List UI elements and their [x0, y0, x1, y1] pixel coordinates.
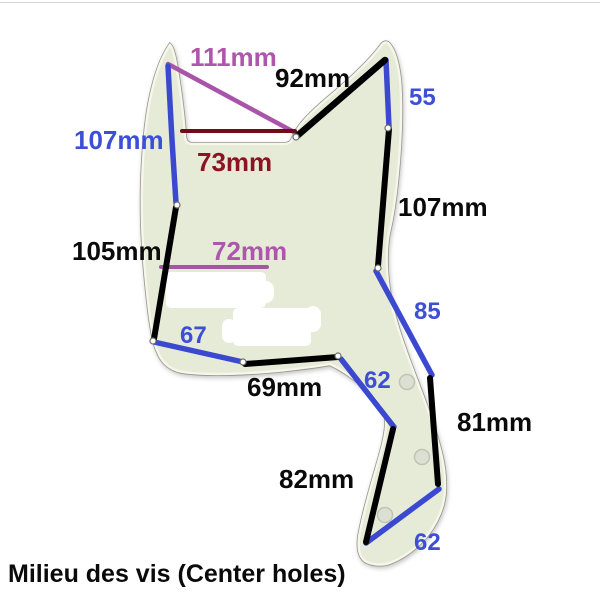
pickup-cutout-lower [233, 308, 311, 346]
label-111mm: 111mm [190, 44, 277, 70]
label-67: 67 [180, 324, 207, 348]
label-81mm: 81mm [457, 409, 532, 435]
screw-hole [174, 202, 180, 208]
pickup-cutout-ear-right-upper [258, 281, 274, 303]
pickup-cutout-upper [166, 272, 266, 308]
pickup-cutout-ear-left-lower [222, 319, 236, 343]
label-85: 85 [414, 300, 441, 324]
pickup-cutout-ear-right-lower [305, 306, 321, 332]
screw-hole [375, 265, 381, 271]
label-105mm: 105mm [72, 238, 162, 264]
label-62-lower: 62 [414, 531, 441, 555]
screw-hole [335, 353, 341, 359]
label-62-upper: 62 [364, 369, 391, 393]
label-82mm: 82mm [279, 466, 354, 492]
label-73mm: 73mm [197, 149, 272, 175]
pot-hole [400, 375, 415, 390]
screw-hole [150, 338, 156, 344]
label-92mm: 92mm [275, 65, 350, 91]
screw-hole [240, 359, 246, 365]
pickguard-measurement-diagram: 111mm 92mm 55 107mm 73mm 107mm 105mm 72m… [0, 0, 600, 600]
measure-line-55 [386, 60, 389, 127]
label-107mm-left: 107mm [74, 127, 164, 153]
screw-hole [293, 134, 299, 140]
label-107mm-right: 107mm [398, 194, 488, 220]
pot-hole [415, 450, 430, 465]
diagram-caption: Milieu des vis (Center holes) [8, 561, 346, 589]
label-72mm: 72mm [212, 238, 287, 264]
screw-hole [385, 125, 391, 131]
label-69mm: 69mm [247, 374, 322, 400]
label-55: 55 [409, 86, 436, 110]
pot-hole [378, 508, 393, 523]
